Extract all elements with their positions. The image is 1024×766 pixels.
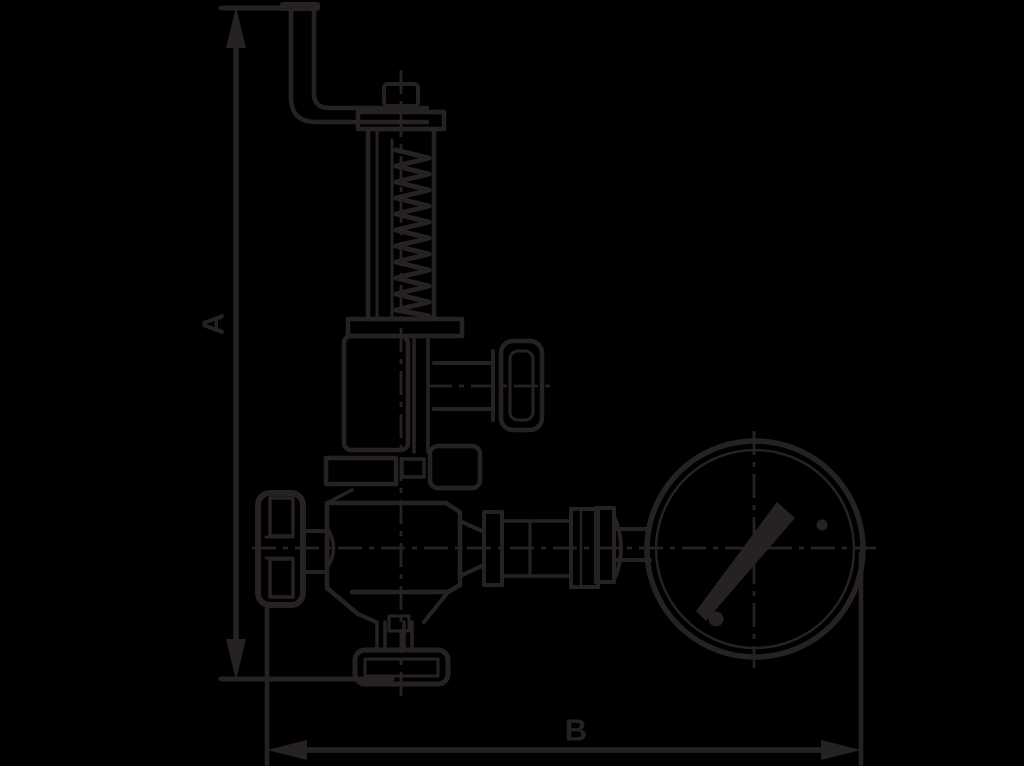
lower-bonnet-shell xyxy=(344,336,408,450)
inlet-neck xyxy=(377,616,412,650)
seat-insert xyxy=(389,616,409,631)
drawing-canvas: A B xyxy=(0,0,1024,766)
valve-body xyxy=(327,490,460,622)
gauge-pivot-dot xyxy=(709,612,724,627)
lever-inner-edge xyxy=(314,11,427,108)
arrowhead-up xyxy=(226,7,246,48)
handwheel-spoke-top xyxy=(270,498,293,536)
stem-packing xyxy=(402,459,424,477)
spring-bonnet xyxy=(348,129,462,336)
outlet-cone-bottom xyxy=(460,565,484,576)
arrowhead-left xyxy=(267,740,307,760)
arrowhead-down xyxy=(226,639,246,680)
body-top-right-chamfer xyxy=(446,503,460,512)
lower-bonnet xyxy=(344,336,428,452)
gauge-needle xyxy=(696,502,795,621)
neck-taper-left xyxy=(358,614,376,622)
handwheel-spoke-bottom xyxy=(270,559,293,597)
bonnet-body-flange xyxy=(326,458,396,484)
outlet-cone-top xyxy=(460,521,484,532)
outlet-boss xyxy=(430,446,480,488)
bonnet-flange xyxy=(348,319,462,336)
arrowhead-right xyxy=(821,740,861,760)
valve-technical-drawing: A B xyxy=(0,0,1024,766)
body-flanges xyxy=(326,446,480,488)
dimension-label-B: B xyxy=(565,713,587,748)
neck-taper-right xyxy=(424,592,448,622)
gauge-dial-dot xyxy=(817,520,828,531)
dimension-label-A: A xyxy=(196,313,231,335)
